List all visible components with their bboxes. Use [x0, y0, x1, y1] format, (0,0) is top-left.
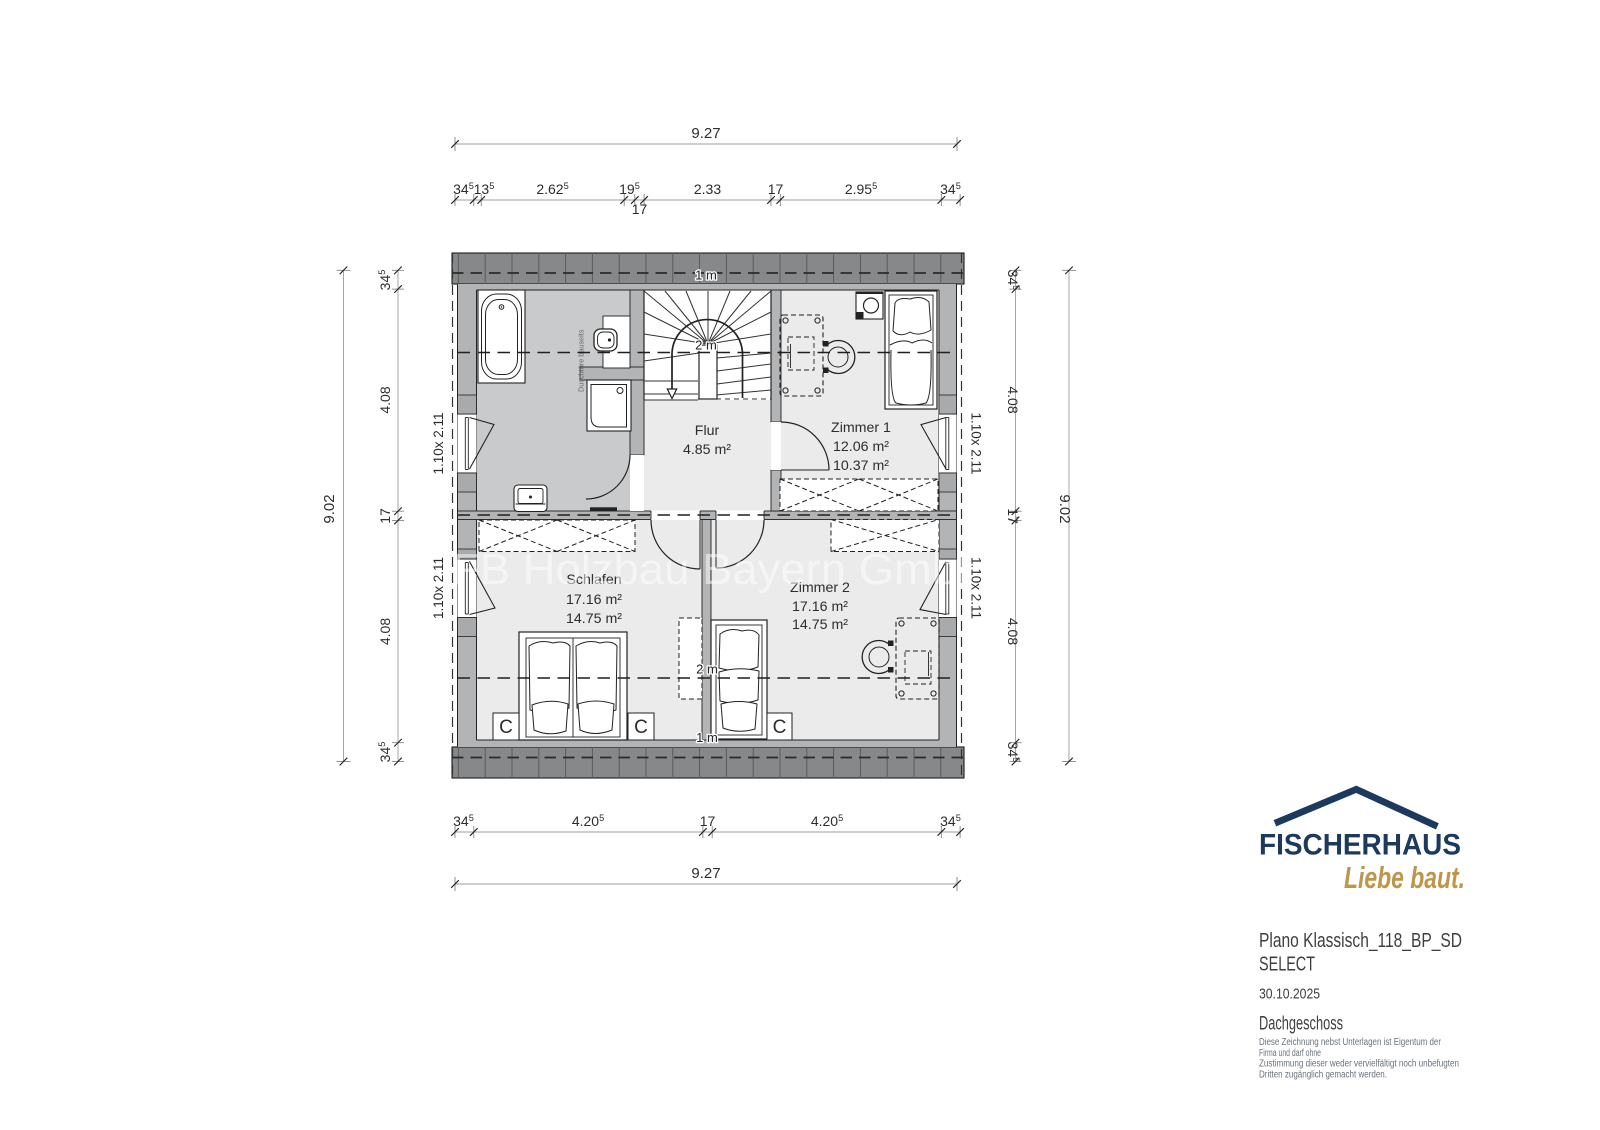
svg-text:C: C	[634, 717, 648, 738]
svg-text:2 m: 2 m	[696, 662, 718, 677]
svg-text:9.02: 9.02	[321, 494, 338, 523]
svg-text:17: 17	[632, 201, 648, 217]
svg-text:4.08: 4.08	[1005, 386, 1021, 413]
svg-text:17: 17	[1005, 508, 1021, 524]
svg-text:1.10x 2.11: 1.10x 2.11	[431, 557, 446, 619]
svg-text:9.27: 9.27	[691, 125, 720, 142]
svg-text:4.85 m²: 4.85 m²	[683, 442, 731, 458]
svg-text:C: C	[499, 717, 513, 738]
svg-text:Dritten zugänglich gemacht wer: Dritten zugänglich gemacht werden.	[1259, 1070, 1387, 1081]
svg-text:9.02: 9.02	[1056, 494, 1073, 523]
svg-text:2.33: 2.33	[694, 181, 721, 197]
svg-text:Liebe baut.: Liebe baut.	[1344, 860, 1465, 895]
svg-text:SELECT: SELECT	[1259, 954, 1315, 976]
svg-text:Duschtüre bauseits: Duschtüre bauseits	[577, 329, 586, 392]
svg-text:FB Holzbau Bayern GmbH: FB Holzbau Bayern GmbH	[452, 545, 990, 594]
svg-text:10.37 m²: 10.37 m²	[833, 458, 889, 474]
svg-text:12.06 m²: 12.06 m²	[833, 439, 889, 455]
svg-text:30.10.2025: 30.10.2025	[1259, 985, 1320, 1002]
svg-text:17: 17	[700, 813, 716, 829]
svg-text:Plano Klassisch_118_BP_SD: Plano Klassisch_118_BP_SD	[1259, 930, 1462, 952]
svg-text:4.08: 4.08	[377, 386, 393, 413]
svg-text:17.16 m²: 17.16 m²	[566, 592, 622, 608]
svg-text:2 m: 2 m	[695, 338, 717, 353]
svg-text:Diese Zeichnung nebst Unterlag: Diese Zeichnung nebst Unterlagen ist Eig…	[1259, 1037, 1442, 1048]
svg-text:4.08: 4.08	[1005, 618, 1021, 645]
svg-text:1.10x 2.11: 1.10x 2.11	[969, 412, 984, 474]
svg-text:C: C	[773, 717, 787, 738]
svg-text:9.27: 9.27	[691, 865, 720, 882]
svg-text:FISCHERHAUS: FISCHERHAUS	[1259, 828, 1461, 861]
svg-text:Flur: Flur	[695, 423, 720, 439]
svg-text:1 m: 1 m	[696, 730, 718, 745]
svg-text:17: 17	[377, 508, 393, 524]
svg-text:1 m: 1 m	[695, 268, 717, 283]
svg-text:1.10x 2.11: 1.10x 2.11	[431, 412, 446, 474]
svg-text:Firma und darf ohne: Firma und darf ohne	[1259, 1048, 1321, 1059]
svg-text:17.16 m²: 17.16 m²	[792, 599, 848, 615]
svg-text:14.75 m²: 14.75 m²	[792, 617, 848, 633]
svg-text:14.75 m²: 14.75 m²	[566, 611, 622, 627]
svg-text:Dachgeschoss: Dachgeschoss	[1259, 1014, 1343, 1035]
svg-text:Zimmer 1: Zimmer 1	[831, 420, 891, 436]
svg-text:Zustimmung dieser weder vervie: Zustimmung dieser weder vervielfältigt n…	[1259, 1059, 1459, 1070]
svg-text:4.08: 4.08	[377, 618, 393, 645]
svg-text:17: 17	[768, 181, 784, 197]
